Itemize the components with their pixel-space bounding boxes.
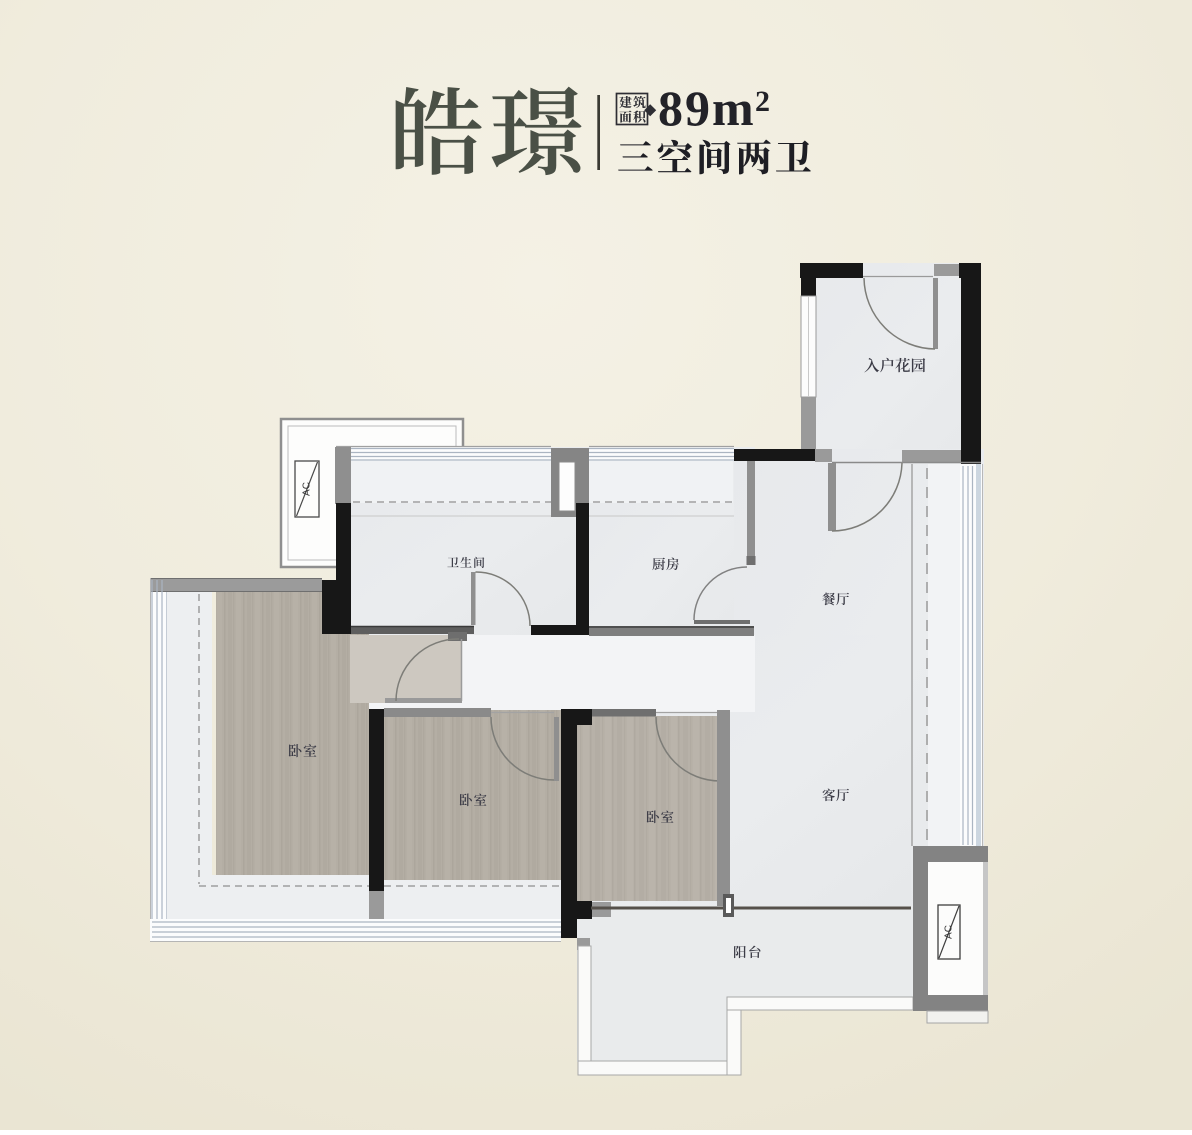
svg-text:89m: 89m (658, 80, 756, 136)
svg-text:2: 2 (755, 85, 770, 118)
svg-text:AC: AC (944, 925, 955, 939)
svg-text:AC: AC (302, 482, 313, 496)
